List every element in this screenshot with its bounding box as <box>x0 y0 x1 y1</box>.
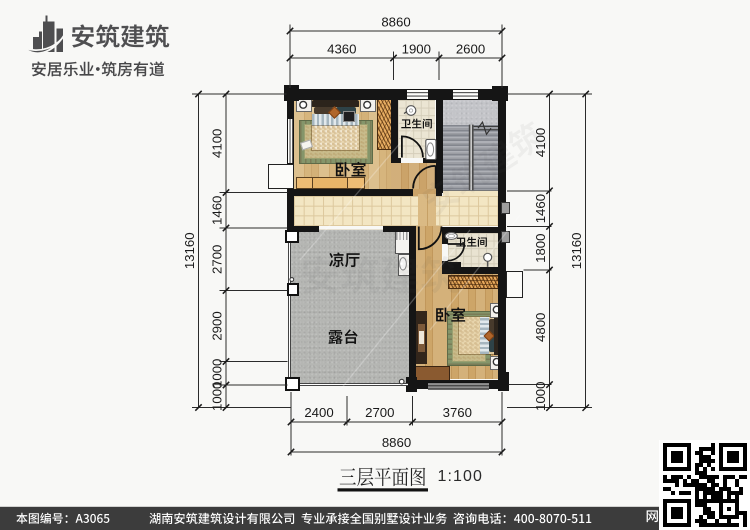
svg-text:8860: 8860 <box>381 15 410 30</box>
svg-text:4360: 4360 <box>327 42 356 57</box>
svg-text:1460: 1460 <box>533 194 548 223</box>
svg-text:3760: 3760 <box>443 405 472 420</box>
svg-text:2400: 2400 <box>304 405 333 420</box>
svg-text:1000: 1000 <box>533 382 548 411</box>
svg-text:8860: 8860 <box>382 435 411 450</box>
svg-text:2700: 2700 <box>365 405 394 420</box>
svg-text:1000: 1000 <box>210 382 225 411</box>
svg-text:1900: 1900 <box>402 42 431 57</box>
svg-text:13160: 13160 <box>182 232 197 269</box>
svg-text:13160: 13160 <box>569 233 584 270</box>
svg-text:2600: 2600 <box>456 42 485 57</box>
svg-text:1:100: 1:100 <box>438 468 484 485</box>
svg-text:2700: 2700 <box>210 245 225 274</box>
svg-text:4100: 4100 <box>210 129 225 158</box>
svg-text:4100: 4100 <box>533 128 548 157</box>
svg-text:1460: 1460 <box>210 196 225 225</box>
svg-text:1800: 1800 <box>533 234 548 263</box>
svg-text:2900: 2900 <box>210 311 225 340</box>
svg-text:4800: 4800 <box>533 313 548 342</box>
